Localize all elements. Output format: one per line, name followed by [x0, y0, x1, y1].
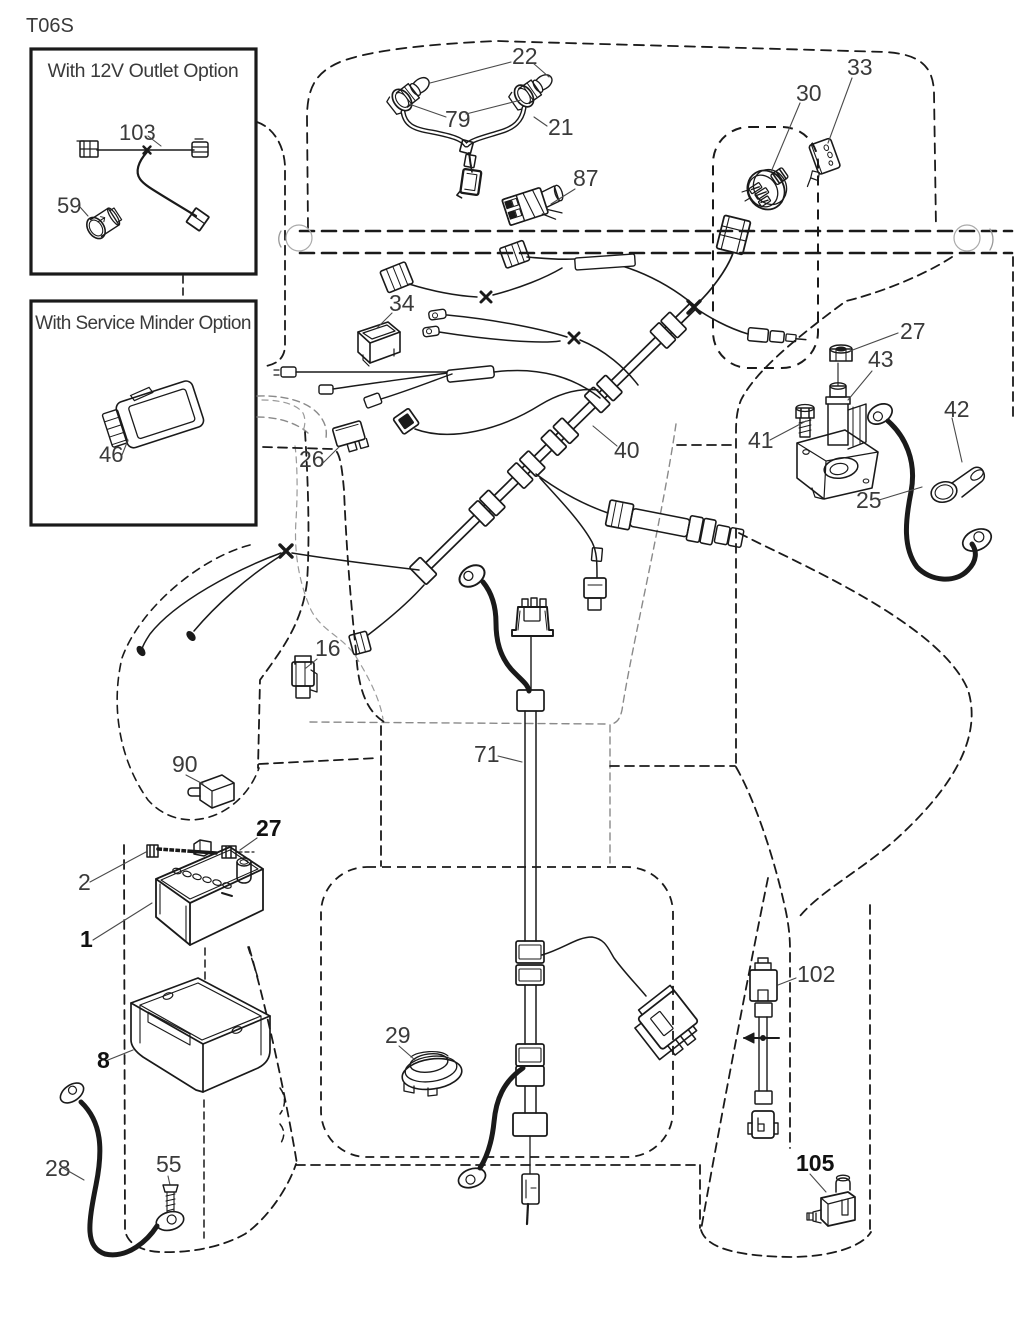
svg-text:40: 40: [614, 437, 640, 463]
svg-text:With Service Minder Option: With Service Minder Option: [35, 313, 251, 334]
svg-text:71: 71: [474, 741, 500, 767]
svg-text:46: 46: [99, 442, 123, 467]
svg-text:28: 28: [45, 1155, 71, 1181]
svg-text:34: 34: [389, 290, 415, 316]
svg-text:87: 87: [573, 165, 599, 191]
svg-text:102: 102: [797, 961, 835, 987]
svg-text:55: 55: [156, 1151, 182, 1177]
svg-text:27: 27: [256, 815, 282, 841]
svg-text:2: 2: [78, 869, 91, 895]
svg-text:1: 1: [80, 926, 93, 952]
svg-text:16: 16: [315, 635, 341, 661]
svg-text:33: 33: [847, 54, 873, 80]
svg-text:T06S: T06S: [26, 15, 74, 37]
svg-text:42: 42: [944, 396, 970, 422]
svg-text:With 12V Outlet Option: With 12V Outlet Option: [48, 60, 239, 82]
svg-text:21: 21: [548, 114, 574, 140]
svg-text:105: 105: [796, 1150, 835, 1176]
svg-text:22: 22: [512, 43, 538, 69]
svg-text:59: 59: [57, 193, 81, 218]
svg-text:90: 90: [172, 751, 198, 777]
svg-text:29: 29: [385, 1022, 411, 1048]
svg-text:43: 43: [868, 346, 894, 372]
svg-text:103: 103: [119, 120, 156, 145]
svg-text:30: 30: [796, 80, 822, 106]
svg-text:27: 27: [900, 318, 926, 344]
svg-text:26: 26: [299, 446, 325, 472]
svg-text:25: 25: [856, 487, 882, 513]
svg-text:79: 79: [445, 106, 471, 132]
